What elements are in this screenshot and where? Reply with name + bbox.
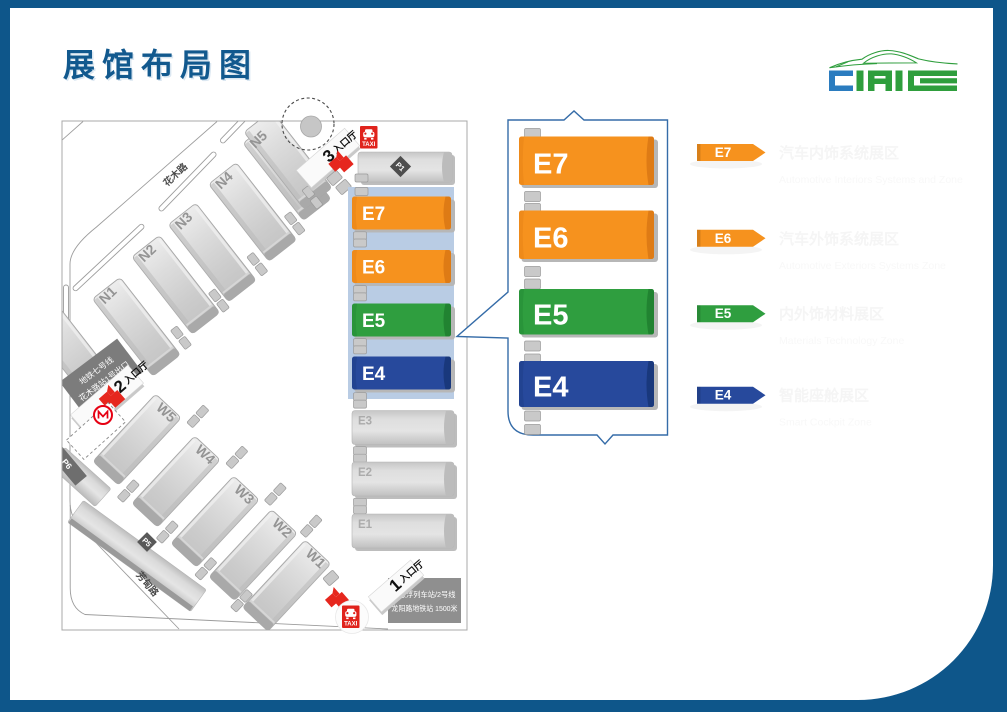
svg-text:E4: E4 — [533, 372, 568, 404]
svg-text:龙阳路地铁站 1500米: 龙阳路地铁站 1500米 — [392, 604, 459, 613]
svg-text:Smart Cockpit Zone: Smart Cockpit Zone — [779, 417, 872, 429]
svg-text:E6: E6 — [362, 258, 385, 279]
svg-text:Automotive Interiors Systems: Automotive Interiors Systems and Zone — [779, 174, 963, 186]
svg-text:E7: E7 — [715, 145, 732, 160]
svg-text:E7: E7 — [362, 204, 385, 225]
svg-text:Materials Technology Zone: Materials Technology Zone — [779, 335, 904, 347]
svg-text:E6: E6 — [533, 222, 568, 254]
svg-text:E5: E5 — [533, 299, 568, 331]
svg-text:汽车外饰系统展区: 汽车外饰系统展区 — [779, 230, 899, 248]
svg-text:智能座舱展区: 智能座舱展区 — [779, 387, 869, 405]
svg-text:E3: E3 — [358, 416, 372, 428]
svg-text:E4: E4 — [715, 388, 732, 403]
svg-text:E7: E7 — [533, 148, 568, 180]
svg-text:内外饰材料展区: 内外饰材料展区 — [779, 305, 884, 323]
svg-text:汽车内饰系统展区: 汽车内饰系统展区 — [779, 144, 899, 162]
svg-text:E1: E1 — [358, 519, 373, 531]
svg-text:TAXI: TAXI — [344, 622, 358, 628]
svg-text:E4: E4 — [362, 364, 386, 385]
svg-text:E6: E6 — [715, 231, 732, 246]
svg-text:TAXI: TAXI — [362, 142, 376, 148]
svg-text:Automotive Exteriors Systems: Automotive Exteriors Systems Zone — [779, 260, 946, 272]
svg-text:E2: E2 — [358, 467, 372, 479]
svg-text:E5: E5 — [715, 306, 732, 321]
svg-text:E5: E5 — [362, 311, 386, 332]
